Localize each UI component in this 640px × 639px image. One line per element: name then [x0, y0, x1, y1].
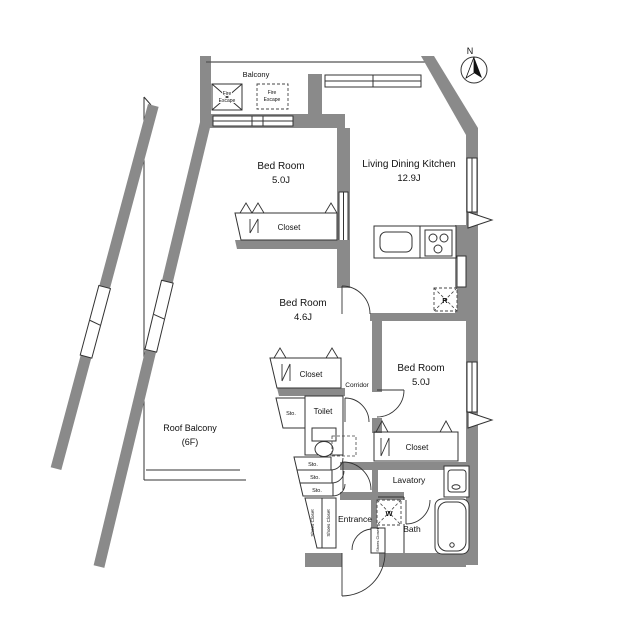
bedroom-top-name: Bed Room — [257, 161, 304, 172]
bedroom-right-size: 5.0J — [412, 377, 430, 388]
interior-walls — [235, 128, 466, 528]
ldk-top-window — [325, 75, 421, 87]
bedroom-middle-size: 4.6J — [294, 312, 312, 323]
main-slanted-wall — [93, 118, 212, 568]
north-label: N — [467, 46, 474, 56]
entrance-label: Entrance — [338, 514, 372, 524]
floor-plan-svg: N Balcony Fire Escape Fire Escape Bed Ro… — [0, 0, 640, 639]
closet-right-label: Closet — [406, 443, 429, 452]
fire-escape-left-line1: Fire — [223, 91, 232, 97]
lavatory-label: Lavatory — [393, 475, 426, 485]
entrance-door — [342, 553, 385, 596]
roof-balcony-floor: (6F) — [182, 437, 199, 447]
floor-plan-page: N Balcony Fire Escape Fire Escape Bed Ro… — [0, 0, 640, 639]
ldk-right-window — [467, 158, 492, 228]
washer-label: W — [385, 509, 393, 518]
kitchen-stove — [425, 230, 452, 256]
toilet-room — [305, 396, 343, 457]
sto-1-label: Sto. — [308, 462, 318, 468]
closet-middle — [270, 348, 341, 388]
washbasin — [444, 466, 469, 497]
balcony-label: Balcony — [243, 70, 270, 79]
north-arrow-icon — [461, 57, 487, 83]
toilet-bowl — [315, 442, 333, 457]
closet-top — [235, 203, 337, 240]
kitchen-counter — [374, 226, 456, 258]
fire-escape-left-box — [212, 84, 242, 110]
shoes-closet-label-2: Shoes Closet — [326, 509, 331, 537]
ldk-name: Living Dining Kitchen — [362, 159, 455, 170]
shoes-closet-label-3: Shoes Closet — [375, 527, 380, 552]
bedroom-right-window — [467, 362, 492, 428]
fire-escape-right-line1: Fire — [268, 90, 277, 96]
fire-escape-right-line2: Escape — [264, 97, 281, 103]
sto-beside-toilet-label: Sto. — [286, 411, 296, 417]
refrigerator-label: R — [442, 296, 448, 305]
closet-top-label: Closet — [278, 223, 301, 232]
kitchen-sink — [380, 232, 412, 252]
bedroom-middle-name: Bed Room — [279, 298, 326, 309]
ldk-size: 12.9J — [397, 173, 420, 184]
bedroom-right-name: Bed Room — [397, 363, 444, 374]
outer-slanted-wall — [50, 104, 159, 470]
closet-middle-label: Closet — [300, 370, 323, 379]
toilet-tank — [312, 428, 336, 441]
bathtub — [435, 499, 469, 554]
roof-balcony-name: Roof Balcony — [163, 423, 217, 433]
corridor-label: Corridor — [345, 382, 369, 389]
toilet-label: Toilet — [314, 407, 333, 416]
fire-escape-left-line2: Escape — [219, 98, 236, 104]
closet-right — [374, 421, 458, 461]
balcony-window — [213, 116, 293, 126]
bedroom-top-size: 5.0J — [272, 175, 290, 186]
sto-2-label: Sto. — [310, 475, 320, 481]
door-arcs — [342, 286, 430, 596]
bath-label: Bath — [403, 524, 421, 534]
shoes-closet-label-1: Shoes Closet — [310, 509, 315, 537]
sto-3-label: Sto. — [312, 488, 322, 494]
